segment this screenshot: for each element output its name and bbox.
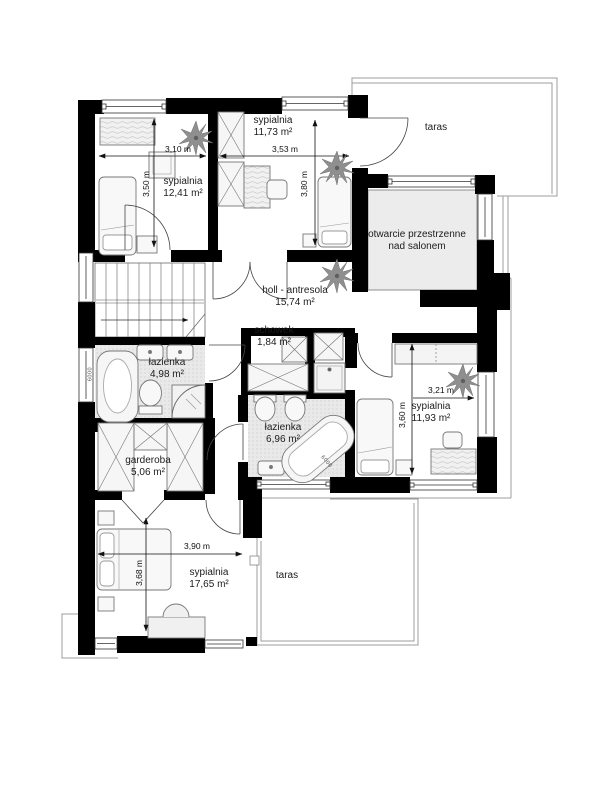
room-label-sypialnia-tl: sypialnia 12,41 m² [163,176,202,200]
room-area: 11,73 m² [254,127,293,139]
closet [248,364,308,391]
wardrobe-long [395,344,477,364]
window [282,97,348,110]
bathtub [97,351,138,422]
room-name: sypialnia [412,401,451,413]
window [257,480,330,489]
toilet [254,395,276,421]
window [410,480,477,490]
desk [431,449,476,474]
bed-single [99,177,136,255]
dimension-label: 3,90 m [184,541,210,551]
room-label-holl: holl - antresola 15,74 m² [262,285,328,309]
room-name: sypialnia [189,567,228,579]
room-area: 6,96 m² [265,434,302,446]
chair [267,180,287,199]
room-area: 15,74 m² [262,297,328,309]
room-area: 11,93 m² [412,413,451,425]
shower [172,385,205,418]
dimension-label: 3,60 m [397,402,407,428]
window [102,100,166,113]
room-name: garderoba [125,455,171,467]
dimension-label: 3,68 m [134,560,144,586]
dimension-label: 3,50 m [141,171,151,197]
dimension-label: 3,21 m [428,385,454,395]
dimension-label: 3,53 m [272,144,298,154]
staircase [95,263,205,337]
room-name: sypialnia [254,115,293,127]
bed-single [357,399,393,475]
bidet [284,395,306,421]
bed-single [318,177,351,247]
room-label-sypialnia-right: sypialnia 11,93 m² [412,401,451,425]
desk [244,166,270,208]
room-label-sypialnia-bottom: sypialnia 17,65 m² [189,567,228,591]
nightstand [98,511,114,525]
room-name: holl - antresola [262,285,328,297]
room-label-lazienka-dolna: łazienka 6,96 m² [265,422,302,446]
washing-machine [314,363,345,393]
room-name: taras [425,122,447,134]
room-label-otwarcie: otwarcie przestrzenne nad salonem [368,229,466,253]
window [478,194,492,240]
wardrobe [167,423,203,491]
room-area: 17,65 m² [189,579,228,591]
sink [258,461,284,475]
nightstand [98,597,114,611]
room-area: 4,98 m² [149,369,186,381]
toilet [139,380,162,414]
dresser [100,118,155,145]
window [79,253,93,302]
fireplace [148,604,205,638]
floor-plan-page: sypialnia 12,41 m² sypialnia 11,73 m² ta… [0,0,600,801]
window [478,372,494,437]
window [95,638,117,649]
dimension-label: 3,10 m [165,144,191,154]
door [358,343,392,377]
window [388,176,475,187]
annotation-line: nad salonem [368,241,466,253]
door [206,500,240,534]
door [213,262,250,299]
room-area: 12,41 m² [163,188,202,200]
window [205,640,243,648]
wardrobe [134,423,167,450]
chair [443,432,462,448]
closet [314,333,343,360]
stool [303,234,316,247]
room-name: taras [276,570,298,582]
folding-door [122,500,164,523]
stool [396,460,412,475]
room-area: 1,84 m² [255,337,294,349]
room-label-lazienka-gorna: łazienka 4,98 m² [149,357,186,381]
room-name: sypialnia [163,176,202,188]
annotation-line: otwarcie przestrzenne [368,229,466,241]
room-name: łazienka [265,422,302,434]
room-label-taras-top: taras [425,122,447,134]
fixture-code: 6000 [88,367,95,381]
room-label-sypialnia-tm: sypialnia 11,73 m² [254,115,293,139]
floor-plan-drawing [0,0,600,801]
room-label-schowek: schowek 1,84 m² [255,325,294,349]
room-name: łazienka [149,357,186,369]
door [360,118,408,166]
room-label-taras-bottom: taras [276,570,298,582]
wardrobe [218,112,244,158]
room-area: 5,06 m² [125,467,171,479]
room-name: schowek [255,325,294,337]
door [209,345,245,381]
dimension-label: 3,80 m [299,171,309,197]
room-label-garderoba: garderoba 5,06 m² [125,455,171,479]
wardrobe [218,162,244,206]
